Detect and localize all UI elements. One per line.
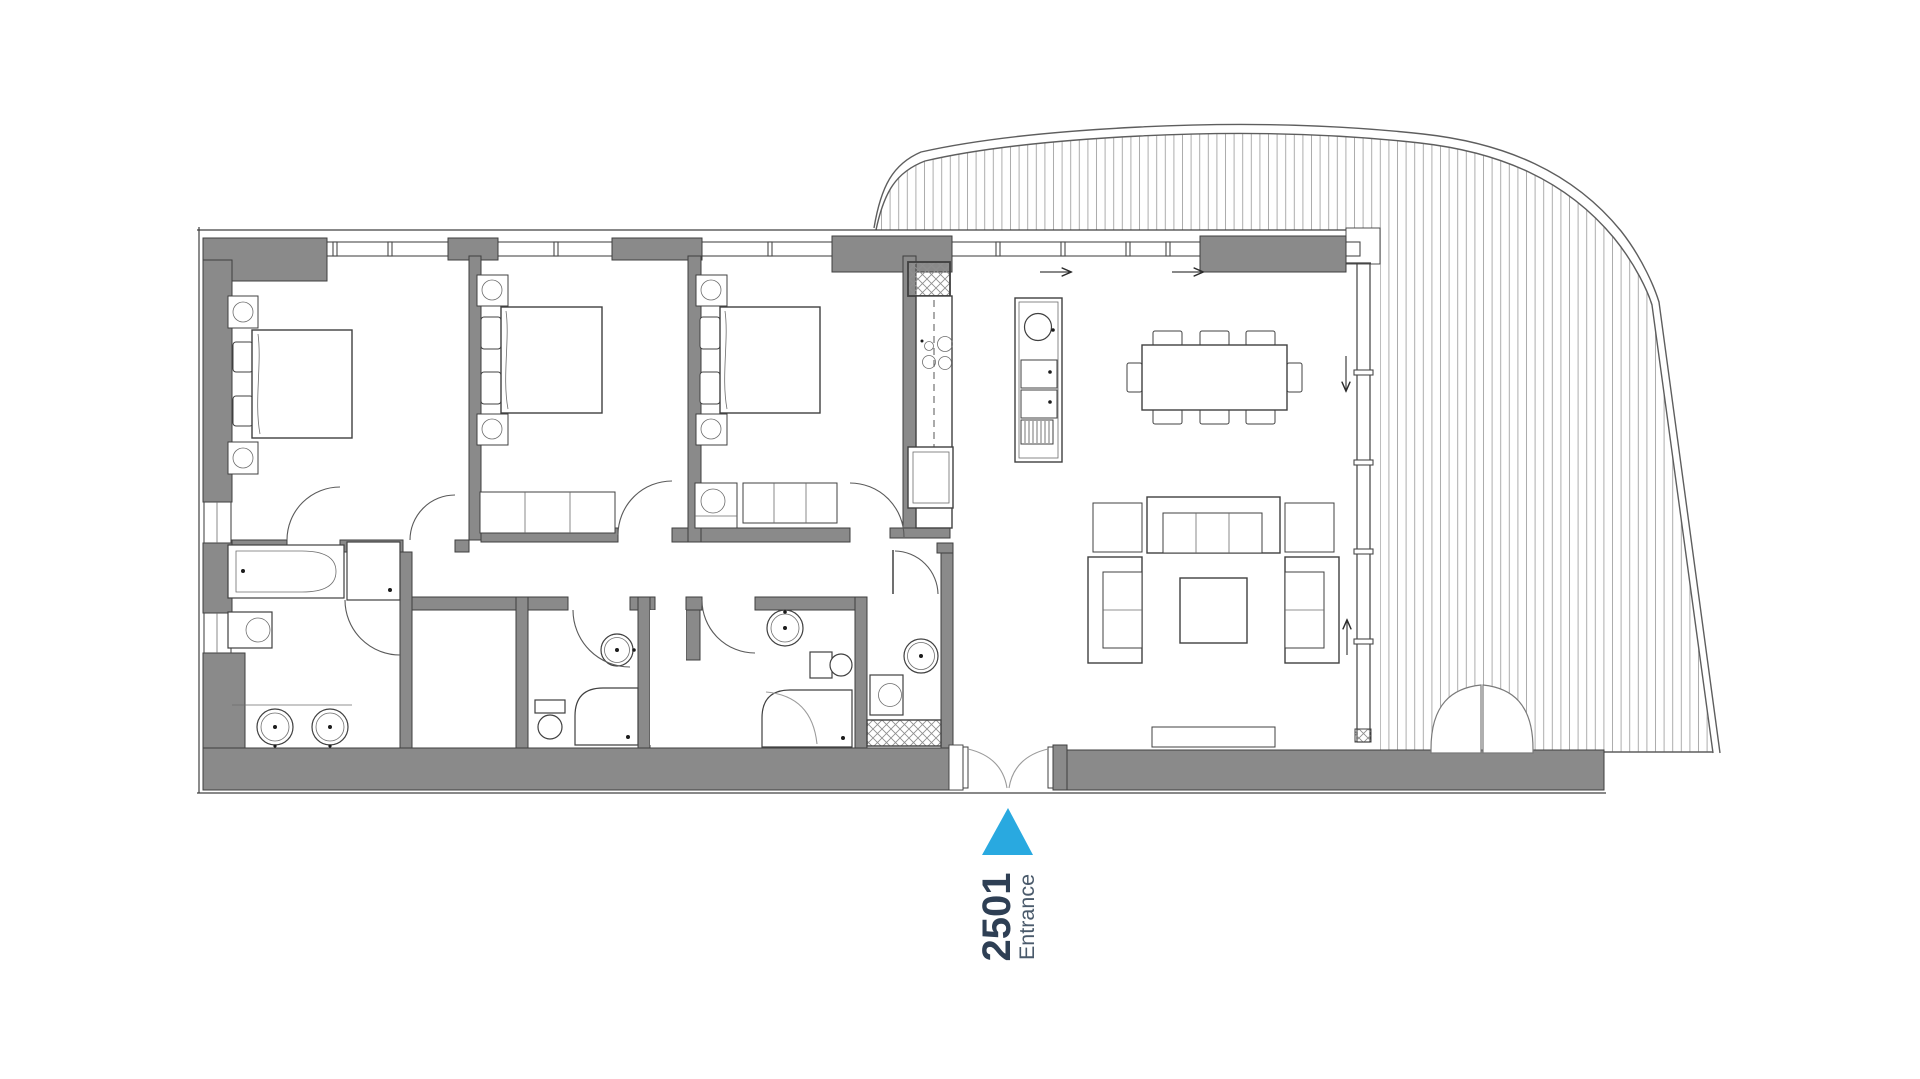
double-bed xyxy=(252,330,352,438)
shower xyxy=(762,690,852,747)
double-bed xyxy=(720,307,820,413)
north-window-wall xyxy=(232,242,1360,256)
wall-bathA-east xyxy=(638,597,650,748)
pillow xyxy=(700,317,720,349)
pillow xyxy=(481,317,501,349)
bench-seat xyxy=(743,483,837,523)
armchair xyxy=(1093,503,1142,552)
pillow xyxy=(481,372,501,404)
bathroom-2 xyxy=(535,610,638,745)
west-window-2 xyxy=(204,613,231,653)
toilet-cistern xyxy=(535,700,565,713)
duct-hatch xyxy=(867,720,941,746)
double-bed xyxy=(501,307,602,413)
bathroom-3 xyxy=(702,600,852,747)
door-swing-masterbath xyxy=(287,487,340,540)
unit-number-label: 2501 xyxy=(975,873,1019,962)
wall-corridor-a xyxy=(412,597,568,610)
entrance-marker-icon xyxy=(982,808,1033,855)
tap-icon xyxy=(241,569,245,573)
base-cabinet xyxy=(908,447,953,508)
wall-bathC-top xyxy=(937,543,953,553)
nightstand xyxy=(228,296,258,328)
wall-south-left xyxy=(203,748,963,790)
tap-icon xyxy=(1051,328,1055,332)
nightstand xyxy=(228,442,258,474)
bench-seat xyxy=(480,492,615,533)
balcony-terrace xyxy=(860,100,1730,794)
storage-niche xyxy=(650,610,686,745)
living-area xyxy=(1088,497,1339,747)
sofa-cushions xyxy=(1163,513,1262,553)
door-swing-bath3 xyxy=(702,600,755,653)
grill-lines xyxy=(1025,421,1049,443)
drain-icon xyxy=(388,588,392,592)
toilet-bowl xyxy=(538,715,562,739)
master-bathroom xyxy=(228,542,400,748)
pier-living xyxy=(1200,236,1346,272)
floor-plan-page: 2501 Entrance xyxy=(0,0,1920,1079)
wall-bed3-south xyxy=(701,528,850,542)
entrance-door-leaf xyxy=(1048,747,1053,788)
entrance-door-leaf xyxy=(963,747,968,788)
floor-plan: 2501 Entrance xyxy=(0,0,1920,1079)
service-duct-hatch xyxy=(908,262,950,296)
door-swing-bedroom1 xyxy=(410,495,455,540)
wall-niche-stub xyxy=(686,610,700,660)
entrance-door-swing xyxy=(968,749,1007,788)
toilet-cistern xyxy=(810,652,832,678)
pillow xyxy=(233,396,253,426)
tv-unit xyxy=(1152,727,1275,747)
toilet xyxy=(228,612,272,648)
door-swing-wc xyxy=(895,551,938,594)
window-glazing xyxy=(232,242,1360,256)
door-swing-bedroom2 xyxy=(618,481,672,535)
wall-corridor-d xyxy=(755,597,855,610)
wall-bed1-south-c xyxy=(455,540,469,552)
pillow xyxy=(233,342,253,372)
guest-wc xyxy=(867,550,941,746)
wall-masterbath-east xyxy=(400,552,412,748)
door-swing-masterbath-corridor xyxy=(345,600,400,655)
wall-corridor-c xyxy=(686,597,702,610)
armchair xyxy=(1285,503,1334,552)
wall-kitchen-cap xyxy=(890,528,950,538)
wall-bed2-south-stub xyxy=(672,528,688,542)
bedroom-3 xyxy=(695,275,904,537)
balcony-mask xyxy=(1606,754,1726,794)
coffee-table xyxy=(1180,578,1247,643)
entrance-door-swing xyxy=(1009,749,1048,788)
kitchen-island xyxy=(1015,298,1062,462)
wall-entry-stub-east xyxy=(1053,745,1067,790)
sink-bowl xyxy=(1021,390,1057,418)
toilet-bowl xyxy=(830,654,852,676)
entrance-jamb-west xyxy=(949,745,963,790)
wall-south-right xyxy=(1053,750,1604,790)
entrance-label-group: 2501 Entrance xyxy=(975,808,1039,961)
bedroom-2 xyxy=(477,275,672,535)
dining-area xyxy=(1127,331,1302,424)
west-window-1 xyxy=(204,502,231,543)
entrance xyxy=(949,745,1053,790)
sink-bowl xyxy=(1021,360,1057,388)
bathtub xyxy=(228,545,344,598)
toilet xyxy=(870,675,903,715)
drain-icon xyxy=(626,735,630,739)
living-glass-wall xyxy=(1346,263,1373,742)
bedroom-1 xyxy=(228,296,455,540)
wall-bathA-west xyxy=(516,597,528,748)
entrance-label: Entrance xyxy=(1015,874,1039,960)
dining-table xyxy=(1142,345,1287,410)
wall-bathC-east xyxy=(941,548,953,748)
island-sink xyxy=(1025,314,1052,341)
glass-wall-track-hatch xyxy=(1355,729,1371,742)
drain-icon xyxy=(841,736,845,740)
pillow xyxy=(700,372,720,404)
shower xyxy=(347,542,400,600)
wall-bathB-east xyxy=(855,597,867,748)
